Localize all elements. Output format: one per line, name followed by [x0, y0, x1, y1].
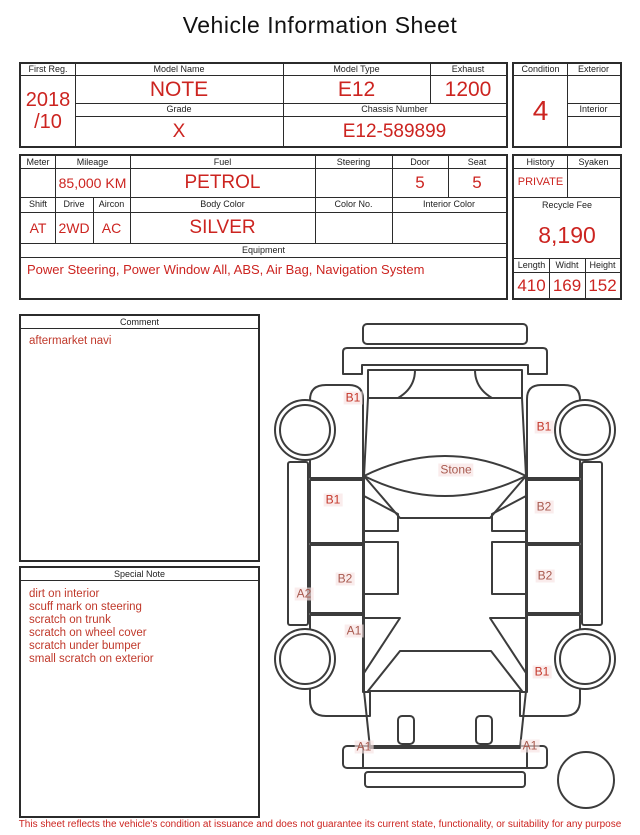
car-diagram-drawing — [270, 310, 620, 825]
equipment-label: Equipment — [21, 243, 506, 257]
damage-marker-rear-bumper-left: A1 — [355, 741, 374, 754]
special-note-lines: dirt on interiorscuff mark on steeringsc… — [29, 588, 254, 666]
rear-bumper-icon — [343, 746, 547, 787]
comment-box: Comment aftermarket navi — [19, 314, 260, 562]
shift-value: AT — [21, 212, 55, 243]
fuel-value: PETROL — [130, 168, 315, 197]
damage-marker-front-left-fender: B1 — [344, 392, 363, 405]
interior-label: Interior — [567, 103, 620, 116]
height-value: 152 — [585, 272, 620, 298]
history-label: History — [514, 156, 567, 168]
rear-window-icon — [368, 651, 522, 691]
car-body-icon — [364, 370, 526, 748]
specs-table: Meter Mileage Fuel Steering Door Seat 85… — [19, 154, 508, 300]
damage-marker-rear-left-door: B2 — [336, 573, 355, 586]
history-value: PRIVATE — [514, 168, 567, 197]
chassis-number-value: E12-589899 — [283, 116, 506, 146]
grade-value: X — [75, 116, 283, 146]
comment-text: aftermarket navi — [29, 335, 254, 348]
aircon-label: Aircon — [93, 197, 130, 212]
special-note-label: Special Note — [21, 568, 258, 580]
model-type-value: E12 — [283, 75, 430, 103]
recycle-fee-label: Recycle Fee — [514, 199, 620, 212]
syaken-label: Syaken — [567, 156, 620, 168]
model-name-value: NOTE — [75, 75, 283, 103]
divider — [514, 197, 620, 198]
damage-marker-left-sill: A2 — [295, 588, 314, 601]
length-label: Length — [514, 258, 549, 272]
door-label: Door — [392, 156, 448, 168]
mileage-value: 85,000 KM — [55, 168, 130, 197]
shift-label: Shift — [21, 197, 55, 212]
page-title: Vehicle Information Sheet — [0, 12, 640, 39]
drive-label: Drive — [55, 197, 93, 212]
special-note-line: scratch on trunk — [29, 614, 254, 627]
special-note-line: dirt on interior — [29, 588, 254, 601]
comment-label: Comment — [21, 316, 258, 328]
first-reg-value: 2018 /10 — [21, 75, 75, 146]
damage-marker-front-left-door: B1 — [324, 494, 343, 507]
special-note-line: scratch on wheel cover — [29, 627, 254, 640]
front-bumper-icon — [343, 324, 547, 374]
meter-label: Meter — [21, 156, 55, 168]
seat-label: Seat — [448, 156, 506, 168]
damage-marker-front-right-fender: B1 — [535, 421, 554, 434]
divider — [21, 580, 258, 581]
divider — [21, 257, 506, 258]
length-value: 410 — [514, 272, 549, 298]
damage-marker-rear-right-door: B2 — [536, 570, 555, 583]
color-no-label: Color No. — [315, 197, 392, 212]
drive-value: 2WD — [55, 212, 93, 243]
body-color-value: SILVER — [130, 212, 315, 243]
model-name-label: Model Name — [75, 64, 283, 75]
car-damage-diagram: B1B1StoneB1B2B2B2A2A1B1A1A1 — [270, 310, 620, 825]
exhaust-value: 1200 — [430, 75, 506, 103]
special-note-line: scratch under bumper — [29, 640, 254, 653]
recycle-fee-value: 8,190 — [514, 212, 620, 258]
footer-disclaimer: This sheet reflects the vehicle's condit… — [0, 819, 640, 830]
special-note-line: small scratch on exterior — [29, 653, 254, 666]
door-value: 5 — [392, 168, 448, 197]
seat-value: 5 — [448, 168, 506, 197]
damage-marker-rear-right-quarter: B1 — [533, 666, 552, 679]
first-reg-label: First Reg. — [21, 64, 75, 75]
admin-box: History Syaken PRIVATE Recycle Fee 8,190… — [512, 154, 622, 300]
model-type-label: Model Type — [283, 64, 430, 75]
height-label: Height — [585, 258, 620, 272]
width-value: 169 — [549, 272, 585, 298]
damage-marker-windshield: Stone — [438, 464, 473, 477]
condition-box: Condition 4 Exterior Interior — [512, 62, 622, 148]
condition-value: 4 — [514, 75, 567, 146]
spare-wheel-icon — [558, 752, 614, 808]
damage-marker-rear-left-quarter: A1 — [345, 625, 364, 638]
special-note-line: scuff mark on steering — [29, 601, 254, 614]
equipment-value: Power Steering, Power Window All, ABS, A… — [27, 260, 502, 278]
vehicle-information-sheet: { "colors": { "accent": "#cc2420", "ink"… — [0, 0, 640, 835]
divider — [21, 328, 258, 329]
aircon-value: AC — [93, 212, 130, 243]
special-note-box: Special Note dirt on interiorscuff mark … — [19, 566, 260, 818]
damage-marker-rear-bumper-right: A1 — [521, 740, 540, 753]
condition-label: Condition — [514, 64, 567, 75]
divider — [567, 116, 620, 117]
body-color-label: Body Color — [130, 197, 315, 212]
registration-table: First Reg. 2018 /10 Model Name NOTE Mode… — [19, 62, 508, 148]
exterior-label: Exterior — [567, 64, 620, 75]
interior-color-label: Interior Color — [392, 197, 506, 212]
fuel-label: Fuel — [130, 156, 315, 168]
steering-label: Steering — [315, 156, 392, 168]
mileage-label: Mileage — [55, 156, 130, 168]
exhaust-label: Exhaust — [430, 64, 506, 75]
grade-label: Grade — [75, 103, 283, 116]
chassis-number-label: Chassis Number — [283, 103, 506, 116]
widht-label: Widht — [549, 258, 585, 272]
damage-marker-front-right-door: B2 — [535, 501, 554, 514]
